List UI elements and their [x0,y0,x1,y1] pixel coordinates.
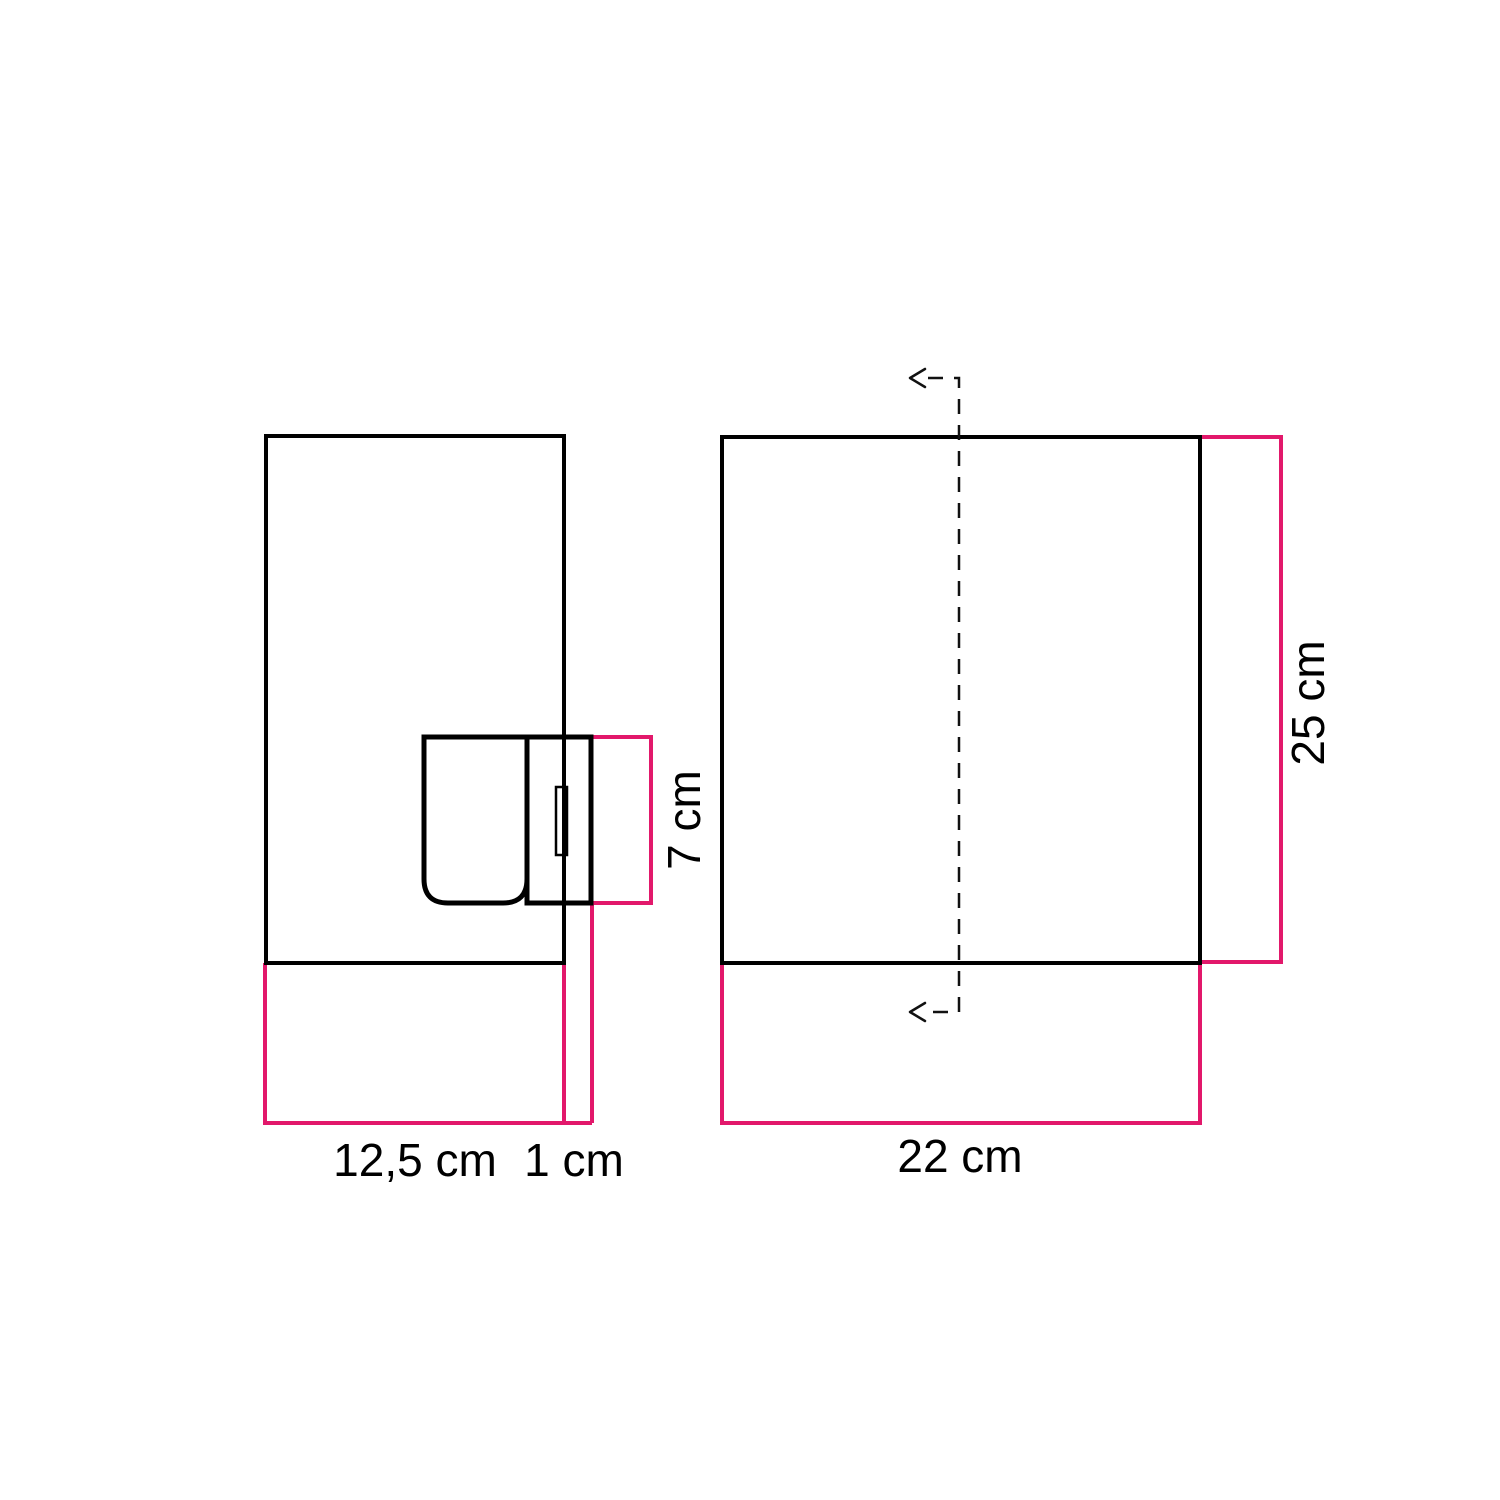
lamp-holder-body [424,737,527,903]
dim-bracket-front-height [1201,437,1281,962]
dim-label-plate-offset: 1 cm [524,1134,624,1186]
dim-bracket-front-width [722,965,1200,1123]
dim-label-front-height: 25 cm [1282,640,1334,765]
arrow-left-bottom-icon [910,1003,925,1021]
diagram-page: 12,5 cm 1 cm 22 cm 7 cm 25 cm [0,0,1500,1500]
front-view-shade-outline [722,437,1200,963]
dim-label-front-width: 22 cm [897,1130,1022,1182]
arrow-left-top-icon [910,369,925,387]
dim-label-socket-height: 7 cm [658,770,710,870]
dim-label-side-width: 12,5 cm [333,1134,497,1186]
dimension-diagram-canvas: 12,5 cm 1 cm 22 cm 7 cm 25 cm [0,0,1500,1500]
center-axis-dashed-line [928,378,959,1012]
dim-bracket-side-width [265,963,592,1123]
dim-bracket-socket-height [592,737,651,903]
